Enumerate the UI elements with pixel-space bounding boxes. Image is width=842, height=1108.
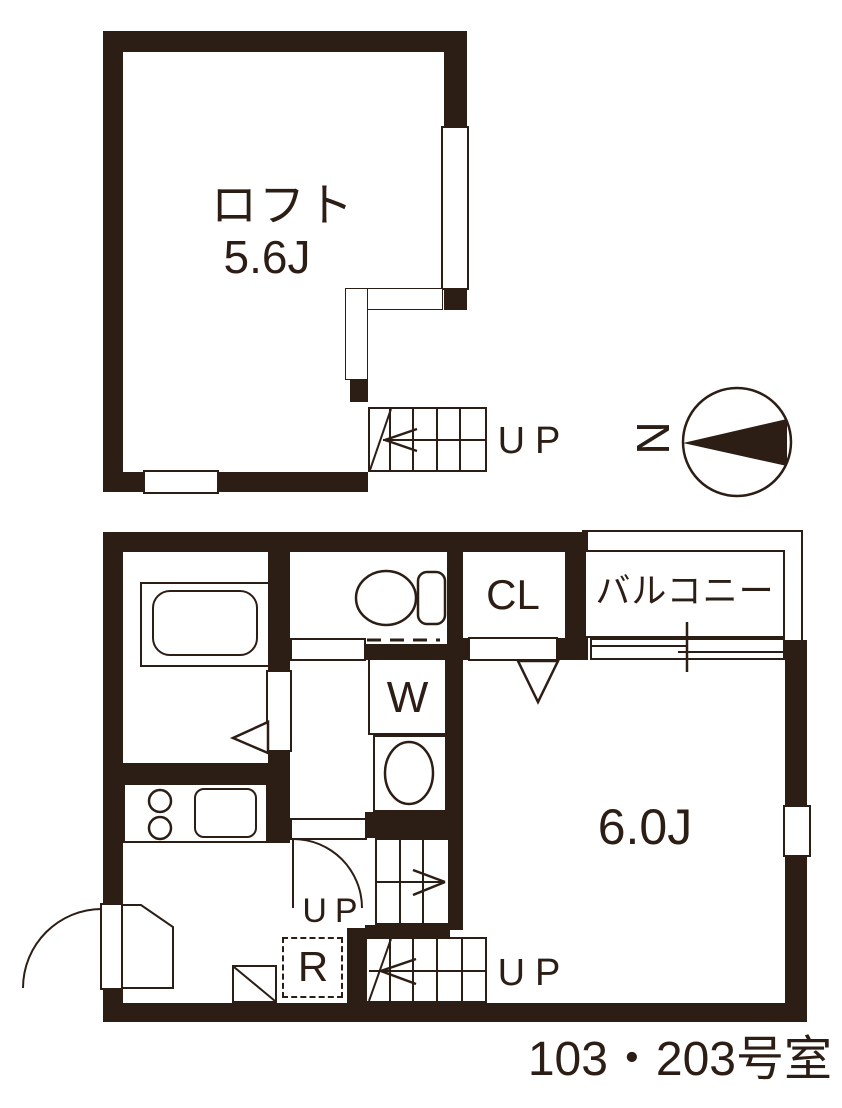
loft-wall-right-upper (444, 31, 467, 128)
washroom-door-gap (266, 670, 292, 752)
toilet-door-gap (290, 638, 366, 661)
loft-wall-right-lower (444, 288, 467, 310)
floor-plan-canvas: ロフト 5.6J UP N CL バルコニー W 6.0J UP R UP 10… (0, 0, 842, 1108)
loft-wall-bottom-left (103, 472, 145, 492)
loft-wall-left (103, 31, 123, 492)
loft-window-right (441, 126, 469, 290)
compass-north-label: N (630, 414, 678, 462)
hall-up-label: UP (297, 894, 371, 928)
main-wall-left-upper (103, 532, 123, 903)
main-wall-right-lower (785, 855, 807, 1003)
stairs-up-label: UP (489, 954, 579, 992)
stair-flight-divider-wall (365, 925, 450, 937)
loft-room-label: ロフト (160, 182, 406, 228)
bathtub (152, 590, 258, 656)
bath-hall-wall-lower (268, 750, 290, 843)
upper-stair-flight (375, 838, 450, 925)
refrigerator-side-wall (347, 928, 365, 1003)
loft-stairs-box (368, 407, 487, 472)
washer-label: W (370, 676, 445, 720)
room-size-label: 6.0J (570, 802, 720, 852)
hall-door-gap (290, 818, 367, 840)
loft-up-label: UP (489, 422, 579, 460)
lower-stair-flight (365, 937, 487, 1003)
loft-rail-wall-stub (350, 378, 368, 402)
washer-box (373, 735, 447, 812)
toilet-bowl (356, 571, 416, 625)
plan-title: 103・203号室 (400, 1036, 832, 1084)
washroom-kitchen-wall (123, 763, 268, 783)
entrance-door-arc (22, 908, 102, 988)
compass-circle (683, 388, 791, 496)
main-wall-bottom (103, 1003, 807, 1022)
entrance-door-leaf (100, 903, 123, 990)
stair-top-wall (365, 812, 463, 838)
refrigerator-label: R (284, 946, 342, 988)
loft-wall-top (103, 31, 467, 52)
loft-window-bottom (143, 470, 219, 494)
compass-needle (683, 419, 787, 466)
washroom-door-triangle (233, 722, 268, 753)
kitchen-sink (194, 788, 257, 838)
main-wall-right-upper (785, 640, 807, 807)
loft-wall-bottom-right (217, 472, 368, 492)
loft-size-label: 5.6J (160, 234, 374, 280)
loft-rail-vertical (345, 288, 368, 380)
entrance-step (122, 905, 173, 988)
main-window-right (783, 805, 811, 857)
toilet-tank (418, 572, 445, 624)
bath-hall-wall-upper (268, 552, 290, 672)
shoe-cabinet (232, 965, 277, 1003)
closet-label: CL (468, 574, 558, 616)
closet-door-gap (468, 637, 558, 661)
main-wall-top (103, 532, 585, 552)
balcony-label: バルコニー (586, 574, 784, 609)
closet-door-triangle (518, 661, 558, 702)
